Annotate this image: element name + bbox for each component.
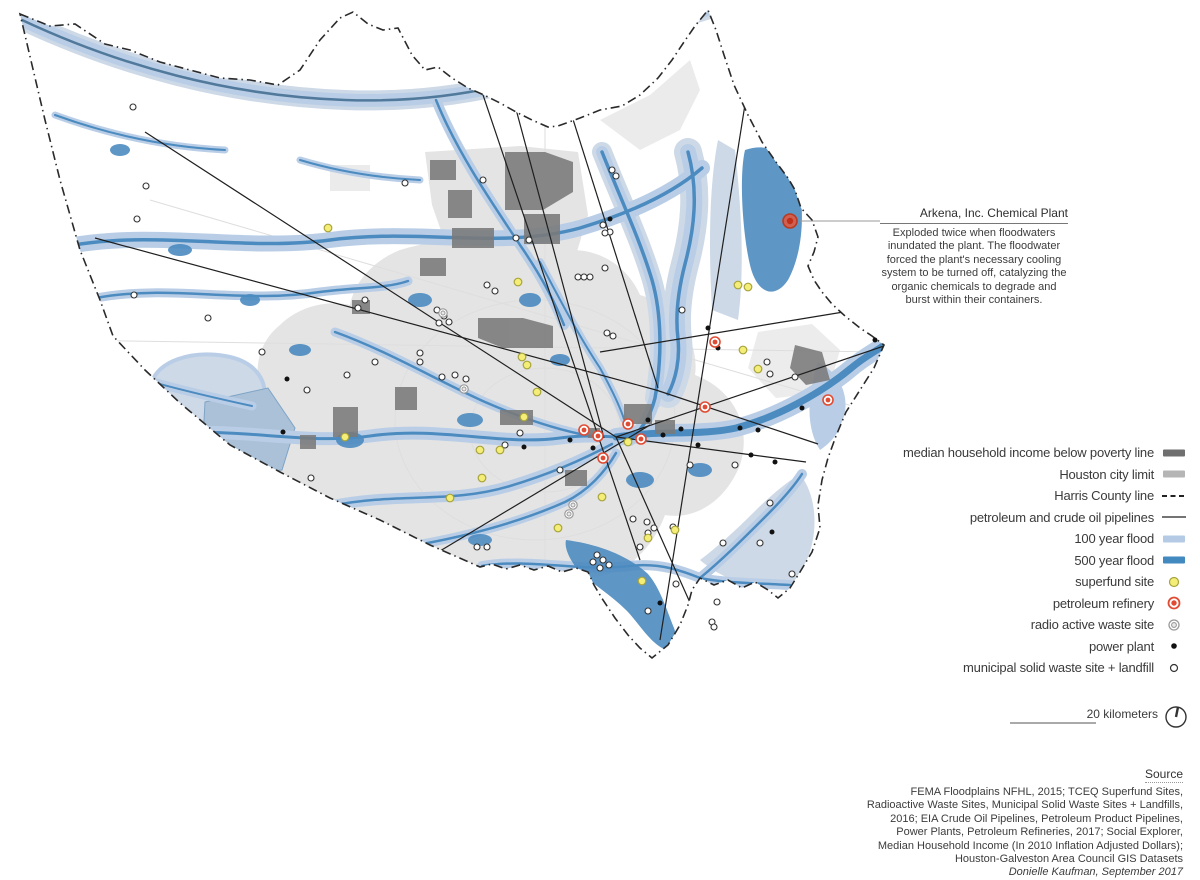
map-poster: { "annotation": { "title": "Arkena, Inc.… (0, 0, 1200, 880)
landfill-marker (130, 104, 136, 110)
superfund-marker (744, 283, 752, 291)
legend-item: superfund site (903, 571, 1187, 593)
landfill-marker (513, 235, 519, 241)
power-plant-marker (706, 326, 711, 331)
legend-item: Harris County line (903, 485, 1187, 507)
landfill-marker (205, 315, 211, 321)
refinery-marker (826, 398, 831, 403)
power-plant-marker (696, 443, 701, 448)
landfill-marker (474, 544, 480, 550)
legend-item: municipal solid waste site + landfill (903, 657, 1187, 679)
power-plant-marker (522, 445, 527, 450)
refinery-icon (1161, 596, 1187, 610)
power-plant-marker (608, 217, 613, 222)
legend-item-label: power plant (1089, 639, 1154, 654)
radioactive-icon (1161, 618, 1187, 632)
power-plant-marker (591, 446, 596, 451)
legend-item-label: 500 year flood (1074, 553, 1154, 568)
legend-item-label: median household income below poverty li… (903, 445, 1154, 460)
landfill-marker (757, 540, 763, 546)
landfill-marker (767, 371, 773, 377)
landfill-marker (402, 180, 408, 186)
legend-item: median household income below poverty li… (903, 442, 1187, 464)
landfill-marker (417, 350, 423, 356)
landfill-marker (308, 475, 314, 481)
power-plant-marker (658, 601, 663, 606)
poverty-swatch (1161, 446, 1187, 460)
landfill-marker (417, 359, 423, 365)
power-plant-marker (749, 453, 754, 458)
landfill-marker (645, 608, 651, 614)
landfill-marker (557, 467, 563, 473)
landfill-marker (600, 557, 606, 563)
landfill-marker (484, 282, 490, 288)
landfill-marker (436, 320, 442, 326)
power-plant-marker (285, 377, 290, 382)
legend-item-label: petroleum and crude oil pipelines (970, 510, 1154, 525)
flood-500-swatch (1161, 553, 1187, 567)
landfill-marker (637, 544, 643, 550)
superfund-marker (671, 526, 679, 534)
legend-item-label: radio active waste site (1031, 617, 1154, 632)
power-plant-icon (1161, 639, 1187, 653)
superfund-marker (638, 577, 646, 585)
legend-item-label: municipal solid waste site + landfill (963, 660, 1154, 675)
superfund-marker (734, 281, 742, 289)
legend-item-label: Houston city limit (1059, 467, 1154, 482)
refinery-marker (626, 422, 631, 427)
superfund-marker (554, 524, 562, 532)
refinery-marker (639, 437, 644, 442)
superfund-marker (446, 494, 454, 502)
landfill-marker (651, 525, 657, 531)
landfill-marker (609, 167, 615, 173)
superfund-marker (533, 388, 541, 396)
landfill-marker (673, 581, 679, 587)
superfund-marker (478, 474, 486, 482)
superfund-marker (644, 534, 652, 542)
landfill-marker (480, 177, 486, 183)
landfill-marker (131, 292, 137, 298)
landfill-marker (143, 183, 149, 189)
source-lines: FEMA Floodplains NFHL, 2015; TCEQ Superf… (853, 786, 1183, 866)
landfill-marker (492, 288, 498, 294)
landfill-marker (767, 500, 773, 506)
landfill-marker (610, 333, 616, 339)
landfill-marker (590, 559, 596, 565)
legend-item-label: petroleum refinery (1053, 596, 1154, 611)
landfill-marker (630, 516, 636, 522)
landfill-marker (613, 173, 619, 179)
landfill-marker (764, 359, 770, 365)
legend-item-label: superfund site (1075, 574, 1154, 589)
landfill-marker (587, 274, 593, 280)
north-arrow-icon (1166, 707, 1186, 727)
landfill-marker (517, 430, 523, 436)
superfund-marker (739, 346, 747, 354)
power-plant-marker (800, 406, 805, 411)
superfund-marker (523, 361, 531, 369)
landfill-marker (452, 372, 458, 378)
flood-100-swatch (1161, 532, 1187, 546)
landfill-marker (463, 376, 469, 382)
superfund-marker (496, 446, 504, 454)
radioactive-marker (571, 503, 575, 507)
superfund-icon (1161, 575, 1187, 589)
landfill-marker (606, 562, 612, 568)
landfill-marker (134, 216, 140, 222)
power-plant-marker (646, 418, 651, 423)
annotation-arkema: Arkena, Inc. Chemical Plant Exploded twi… (880, 206, 1068, 307)
source-line: Power Plants, Petroleum Refineries, 2017… (853, 826, 1183, 839)
landfill-marker (714, 599, 720, 605)
landfill-marker (526, 237, 532, 243)
power-plant-marker (679, 427, 684, 432)
radioactive-marker (462, 387, 466, 391)
landfill-marker (644, 519, 650, 525)
legend-item: Houston city limit (903, 464, 1187, 486)
legend-item: radio active waste site (903, 614, 1187, 636)
annotation-body: Exploded twice when floodwaters inundate… (880, 224, 1068, 307)
power-plant-marker (770, 530, 775, 535)
landfill-marker (259, 349, 265, 355)
radioactive-marker (441, 311, 445, 315)
landfill-marker (604, 330, 610, 336)
legend-item: 100 year flood (903, 528, 1187, 550)
refinery-marker (713, 340, 718, 345)
superfund-marker (520, 413, 528, 421)
landfill-marker (594, 552, 600, 558)
superfund-marker (754, 365, 762, 373)
landfill-marker (304, 387, 310, 393)
landfill-marker (446, 319, 452, 325)
legend-item: petroleum refinery (903, 593, 1187, 615)
landfill-marker (575, 274, 581, 280)
landfill-marker (602, 230, 608, 236)
source-line: Median Household Income (In 2010 Inflati… (853, 840, 1183, 853)
power-plant-marker (661, 433, 666, 438)
landfill-marker (732, 462, 738, 468)
pipeline-line (1161, 510, 1187, 524)
legend-item: 500 year flood (903, 550, 1187, 572)
superfund-marker (476, 446, 484, 454)
source-line: FEMA Floodplains NFHL, 2015; TCEQ Superf… (853, 786, 1183, 799)
refinery-marker (601, 456, 606, 461)
scale-label: 20 kilometers (1087, 707, 1158, 721)
legend-item-label: 100 year flood (1074, 531, 1154, 546)
landfill-marker (789, 571, 795, 577)
legend-item: power plant (903, 636, 1187, 658)
landfill-marker (439, 374, 445, 380)
source-credit: Donielle Kaufman, September 2017 (853, 866, 1183, 879)
landfill-marker (344, 372, 350, 378)
source-block: Source FEMA Floodplains NFHL, 2015; TCEQ… (853, 765, 1183, 880)
superfund-marker (518, 353, 526, 361)
source-line: 2016; EIA Crude Oil Pipelines, Petroleum… (853, 813, 1183, 826)
landfill-marker (372, 359, 378, 365)
refinery-marker (596, 434, 601, 439)
superfund-marker (598, 493, 606, 501)
landfill-marker (711, 624, 717, 630)
landfill-marker (679, 307, 685, 313)
power-plant-marker (773, 460, 778, 465)
city-limit-swatch (1161, 467, 1187, 481)
landfill-marker (720, 540, 726, 546)
landfill-marker (362, 297, 368, 303)
landfill-marker (600, 222, 606, 228)
arkema-plant-marker (787, 218, 793, 224)
annotation-title: Arkena, Inc. Chemical Plant (880, 206, 1068, 224)
source-line: Radioactive Waste Sites, Municipal Solid… (853, 799, 1183, 812)
landfill-marker (484, 544, 490, 550)
power-plant-marker (756, 428, 761, 433)
refinery-marker (582, 428, 587, 433)
landfill-icon (1161, 661, 1187, 675)
superfund-marker (624, 438, 632, 446)
power-plant-marker (738, 426, 743, 431)
power-plant-marker (568, 438, 573, 443)
superfund-marker (514, 278, 522, 286)
radioactive-marker (567, 512, 571, 516)
map-canvas (0, 0, 1200, 880)
legend-item-label: Harris County line (1054, 488, 1154, 503)
source-line: Houston-Galveston Area Council GIS Datas… (853, 853, 1183, 866)
legend: median household income below poverty li… (903, 442, 1187, 679)
legend-item: petroleum and crude oil pipelines (903, 507, 1187, 529)
power-plant-marker (873, 338, 878, 343)
source-title: Source (1145, 767, 1183, 783)
landfill-marker (581, 274, 587, 280)
power-plant-marker (281, 430, 286, 435)
superfund-marker (341, 433, 349, 441)
landfill-marker (597, 565, 603, 571)
landfill-marker (792, 374, 798, 380)
refinery-marker (703, 405, 708, 410)
superfund-marker (324, 224, 332, 232)
landfill-marker (602, 265, 608, 271)
county-line-dash (1161, 489, 1187, 503)
landfill-marker (355, 305, 361, 311)
landfill-marker (687, 462, 693, 468)
